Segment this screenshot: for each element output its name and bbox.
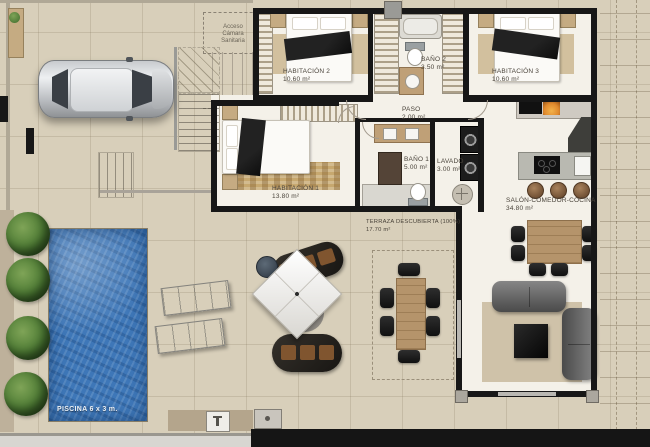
nightstand — [270, 12, 286, 28]
acceso-label: Acceso Cámara Sanitaria — [221, 24, 245, 44]
outdoor-chair — [426, 316, 440, 336]
sliding-door — [457, 300, 461, 358]
sofa-seam — [568, 344, 590, 345]
room-name: LAVADO — [437, 158, 464, 166]
outdoor-dining-table — [396, 278, 426, 350]
sink-bano1 — [405, 128, 419, 140]
nightstand — [560, 12, 576, 28]
room-name: TERRAZA DESCUBIERTA (100%) — [366, 218, 460, 226]
sink-bano2 — [405, 74, 420, 89]
outdoor-chair — [426, 288, 440, 308]
pillow — [500, 17, 526, 30]
sun-lounger — [161, 280, 232, 316]
room-name: BAÑO 2 — [421, 56, 446, 64]
paving-joint-line — [636, 0, 637, 430]
cooktop — [534, 156, 560, 174]
wall — [355, 118, 360, 206]
wall — [253, 8, 597, 14]
pillow — [528, 17, 554, 30]
room-name: SALÓN-COMEDOR-COCINA — [506, 197, 596, 205]
sofa-cushion — [281, 345, 296, 360]
shrub — [6, 316, 50, 360]
room-label-group-lavado: LAVADO 3.00 m² — [437, 158, 464, 174]
porch-step-line — [100, 190, 212, 193]
wall — [463, 8, 469, 102]
burner — [549, 160, 556, 167]
room-area: 3.00 m² — [437, 166, 464, 174]
room-label-group-bano1: BAÑO 1 5.00 m² — [404, 156, 429, 172]
tv — [519, 101, 542, 114]
corner-post — [586, 390, 599, 403]
room-label-group-terraza: TERRAZA DESCUBIERTA (100%) 17.70 m² — [366, 218, 460, 234]
room-area: 13.80 m² — [272, 193, 319, 201]
dining-chair — [551, 263, 568, 276]
laundry-drain — [452, 184, 473, 205]
nightstand — [222, 174, 238, 190]
room-area: 10.60 m² — [283, 76, 330, 84]
sofa-cushion — [300, 345, 315, 360]
room-area: 17.70 m² — [366, 226, 460, 234]
wall — [211, 100, 339, 106]
sidewalk — [0, 433, 251, 447]
planter-plant — [9, 12, 20, 23]
room-area: 34.80 m² — [506, 205, 596, 213]
sun-lounger — [155, 318, 226, 354]
room-label-group-habitacion1: HABITACIÓN 1 13.80 m² — [272, 185, 319, 201]
boundary-wall-segment — [0, 96, 8, 122]
burner — [543, 166, 550, 173]
outdoor-sink-unit — [254, 409, 282, 429]
car-hood — [152, 69, 172, 109]
shrub — [6, 212, 50, 256]
pillow — [226, 125, 238, 147]
outdoor-chair — [398, 350, 420, 363]
nightstand — [222, 104, 238, 120]
paving-joint-line — [616, 0, 617, 430]
boundary-wall-segment — [26, 128, 34, 154]
corner-post — [455, 390, 468, 403]
sofa-seam — [529, 287, 530, 307]
car-mirror — [126, 116, 133, 121]
wall — [430, 122, 435, 206]
fireplace — [543, 101, 560, 115]
bed-throw — [492, 29, 560, 60]
drain-cross — [456, 193, 468, 194]
drain-cross — [461, 188, 462, 200]
perimeter-wall-south — [251, 429, 650, 447]
sink-bano1 — [383, 128, 397, 140]
floor-plan: Acceso Cámara Sanitaria PISCINA 6 x 3 m. — [0, 0, 650, 447]
sofa-cushion — [319, 345, 334, 360]
shrub — [6, 258, 50, 302]
pool: PISCINA 6 x 3 m. — [48, 228, 148, 422]
nightstand — [478, 12, 494, 28]
wall — [478, 118, 484, 212]
wall — [211, 100, 217, 212]
dining-chair — [529, 263, 546, 276]
room-label-group-paso: PASO 2.00 m² — [402, 106, 425, 122]
pool-label: PISCINA 6 x 3 m. — [57, 406, 118, 413]
vanity-bano1 — [374, 124, 432, 143]
bathtub-bano2 — [399, 14, 442, 39]
toilet-bowl-bano1 — [410, 183, 426, 201]
room-area: 2.00 m² — [402, 114, 425, 122]
dining-chair — [511, 226, 525, 242]
cabinet-bano1 — [378, 152, 402, 185]
dining-chair — [511, 245, 525, 261]
room-name: PASO — [402, 106, 425, 114]
outdoor-sofa — [272, 334, 342, 372]
outdoor-chair — [398, 263, 420, 276]
car-roof — [70, 68, 134, 112]
tub-inner — [403, 18, 438, 35]
room-label-group-salon: SALÓN-COMEDOR-COCINA 34.80 m² — [506, 197, 596, 213]
kitchen-sink — [574, 156, 591, 176]
coffee-table — [514, 324, 548, 358]
hall-wardrobe — [442, 12, 465, 94]
room-name: HABITACIÓN 3 — [492, 68, 539, 76]
room-label-group-habitacion2: HABITACIÓN 2 10.60 m² — [283, 68, 330, 84]
nightstand — [352, 12, 368, 28]
sliding-door — [498, 392, 556, 396]
room-name: BAÑO 1 — [404, 156, 429, 164]
pillow — [292, 17, 318, 30]
sofa — [492, 281, 566, 312]
wall — [253, 8, 259, 102]
car — [38, 60, 174, 118]
hall-wardrobe — [374, 12, 399, 94]
shrub — [4, 372, 48, 416]
room-label-group-bano2: BAÑO 2 3.50 m² — [421, 56, 446, 72]
room-label-group-habitacion3: HABITACIÓN 3 10.60 m² — [492, 68, 539, 84]
ramp-hatched — [178, 47, 220, 94]
wall — [211, 206, 462, 212]
bed-throw — [284, 31, 352, 61]
sofa-cushion — [317, 248, 337, 266]
outdoor-chair — [380, 316, 394, 336]
outdoor-chair — [380, 288, 394, 308]
sink-dot — [265, 416, 270, 421]
wall — [368, 8, 373, 102]
dining-table — [527, 220, 582, 264]
room-area: 10.60 m² — [492, 76, 539, 84]
room-area: 3.50 m² — [421, 64, 446, 72]
shower-fixture-icon — [213, 416, 222, 418]
room-name: HABITACIÓN 2 — [283, 68, 330, 76]
chimney — [384, 1, 402, 19]
bed-habitacion1 — [222, 120, 310, 174]
outdoor-shower — [206, 411, 230, 432]
pillow — [320, 17, 346, 30]
stairs-stringer — [174, 47, 177, 150]
room-name: HABITACIÓN 1 — [272, 185, 319, 193]
boundary-line-top — [0, 0, 253, 3]
car-mirror — [126, 57, 133, 62]
paving-joints-right — [600, 0, 650, 430]
bed-throw — [236, 118, 266, 176]
room-area: 5.00 m² — [404, 164, 429, 172]
